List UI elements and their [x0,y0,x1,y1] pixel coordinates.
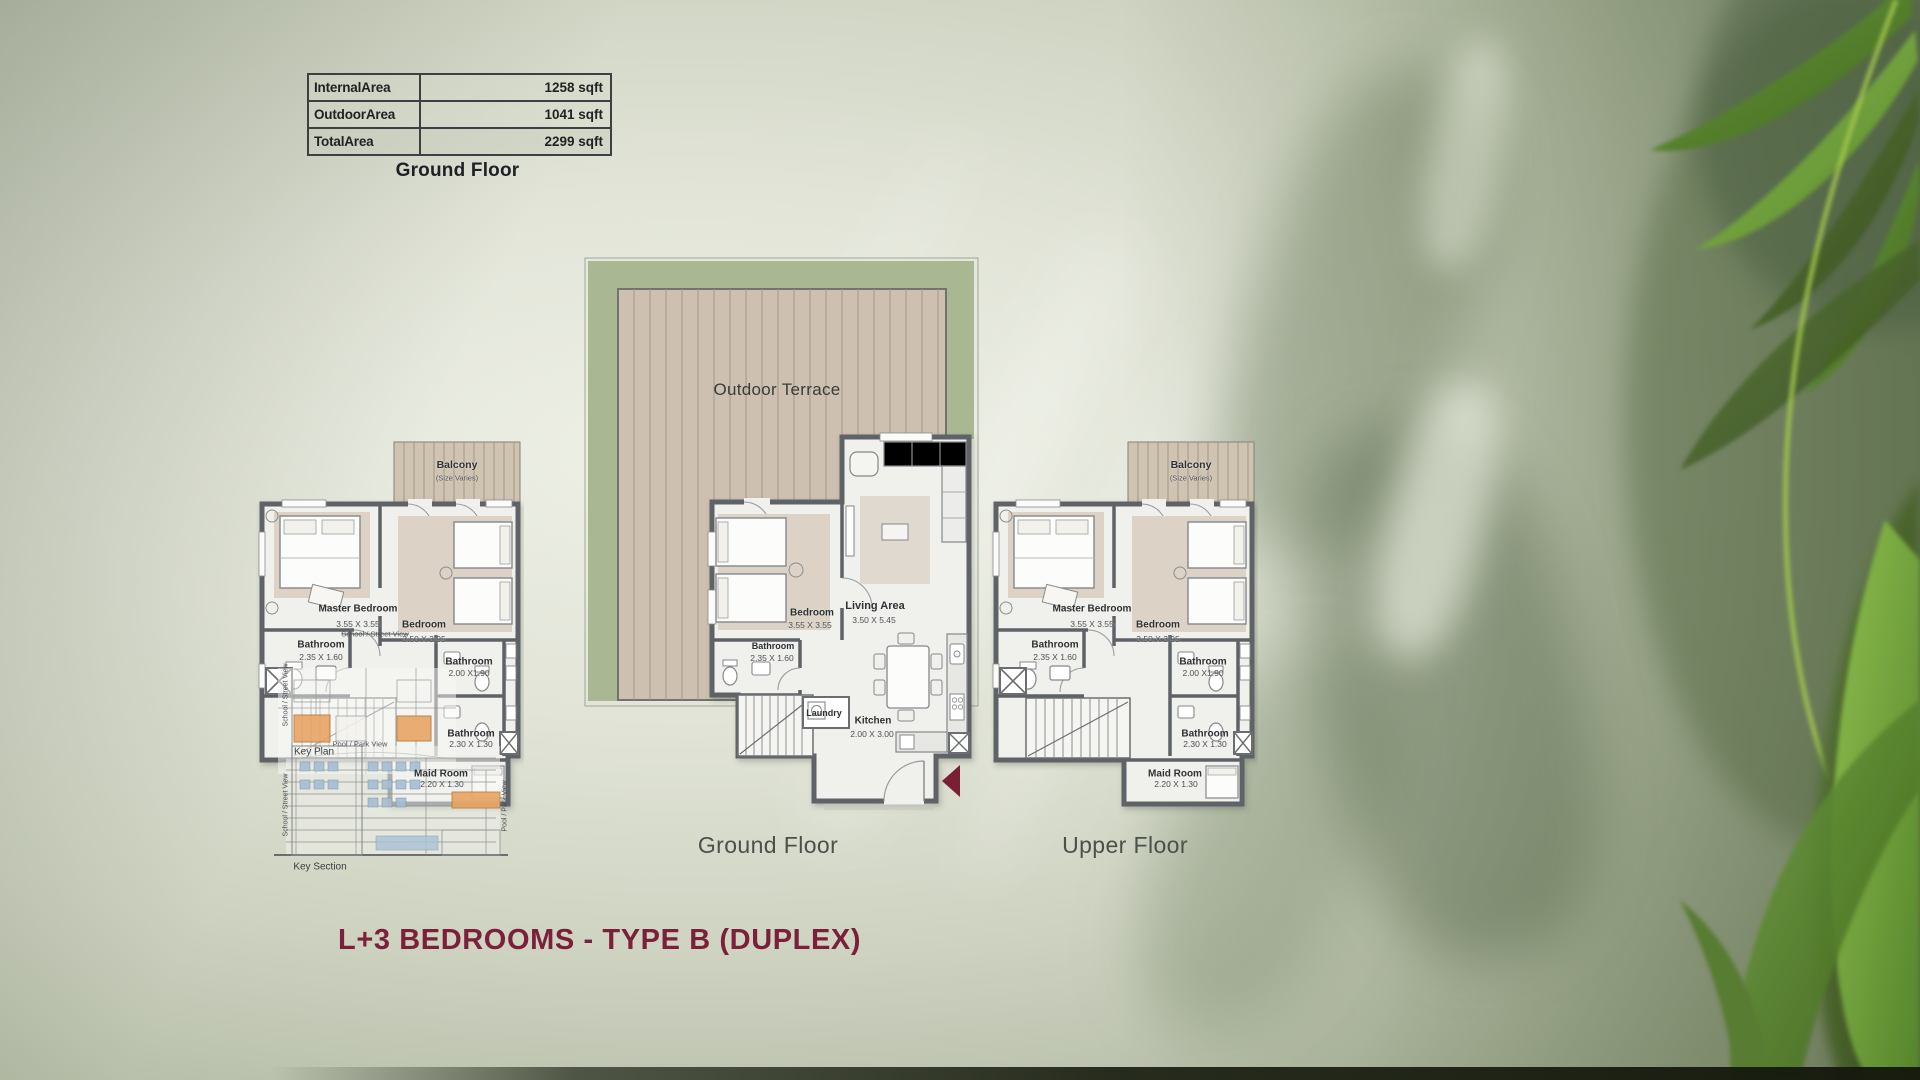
table-row: OutdoorArea 1041 sqft [309,102,610,129]
room-dims-bathroom: 2.35 X 1.60 [750,653,793,663]
room-label-bathroom: Bathroom [297,640,344,651]
room-label-master-bedroom: Master Bedroom [1053,604,1132,615]
table-caption: Ground Floor [307,160,608,182]
room-label-living-area: Living Area [845,600,905,612]
room-dims-master-bedroom: 3.55 X 3.55 [1070,619,1113,629]
terrace-label: Outdoor Terrace [713,380,840,400]
area-row-value: 2299 sqft [421,129,610,154]
area-row-value: 1258 sqft [421,75,610,100]
floor-plan-drawing-right [990,440,1258,820]
room-dims-bedroom: 3.50 X 3.95 [402,634,445,644]
room-label-bathroom: Bathroom [1179,657,1226,668]
room-label-bedroom: Bedroom [1136,620,1180,631]
caption-ground-floor: Ground Floor [698,832,838,859]
room-label-bathroom: Bathroom [1031,640,1078,651]
view-note-school-street-vertical: School / Street View [283,774,290,837]
room-dims-maid-room: 2.20 X 1.30 [1154,779,1197,789]
room-label-bathroom: Bathroom [445,657,492,668]
table-row: TotalArea 2299 sqft [309,129,610,154]
palm-leaves-illustration [1300,0,1920,1080]
room-dims-bathroom: 2.30 X 1.30 [1183,739,1226,749]
view-note-school-street-vertical: School / Street View [283,664,290,727]
room-note-balcony: (Size Varies) [1170,474,1212,483]
room-label-bathroom: Bathroom [447,729,494,740]
key-plan-label: Key Plan [294,747,334,758]
brochure-page: InternalArea 1258 sqft OutdoorArea 1041 … [0,0,1920,1080]
area-row-label: OutdoorArea [309,102,421,127]
area-row-label: InternalArea [309,75,421,100]
table-row: InternalArea 1258 sqft [309,75,610,102]
room-label-maid-room: Maid Room [414,769,468,780]
room-dims-bathroom: 2.30 X 1.30 [449,739,492,749]
room-dims-kitchen: 2.00 X 3.00 [850,729,893,739]
room-dims-bedroom: 3.50 X 3.95 [1136,634,1179,644]
room-dims-bathroom: 2.00 X1.90 [1182,668,1223,678]
room-label-kitchen: Kitchen [855,716,892,727]
room-label-balcony: Balcony [437,459,478,471]
room-label-bathroom: Bathroom [1181,729,1228,740]
plan-upper-floor: Balcony (Size Varies) Master Bedroom 3.5… [990,440,1258,820]
room-label-balcony: Balcony [1171,459,1212,471]
area-table: InternalArea 1258 sqft OutdoorArea 1041 … [307,73,612,156]
bottom-edge-shadow [0,1067,1920,1080]
view-note-pool-park-vertical: Pool / Park View [502,780,509,831]
room-dims-maid-room: 2.20 X 1.30 [420,779,463,789]
area-row-value: 1041 sqft [421,102,610,127]
room-dims-bedroom: 3.55 X 3.55 [788,620,831,630]
room-dims-bathroom: 2.35 X 1.60 [1033,652,1076,662]
plan-ground-floor: Outdoor Terrace Bedroom 3.55 X 3.55 Livi… [584,256,984,816]
room-label-master-bedroom: Master Bedroom [319,604,398,615]
view-note-school-street: School / Street View [341,630,408,639]
room-label-maid-room: Maid Room [1148,769,1202,780]
room-label-laundry: Laundry [806,708,842,718]
room-dims-master-bedroom: 3.55 X 3.55 [336,619,379,629]
plan-upper-floor-key: Balcony (Size Varies) Master Bedroom 3.5… [256,440,524,882]
room-note-balcony: (Size Varies) [436,474,478,483]
area-row-label: TotalArea [309,129,421,154]
view-note-pool-park: Pool / Park View [333,740,388,749]
page-title: L+3 BEDROOMS - TYPE B (DUPLEX) [338,924,861,957]
caption-upper-floor: Upper Floor [1062,832,1188,859]
room-label-bedroom: Bedroom [790,608,834,619]
room-dims-bathroom: 2.00 X1.90 [448,668,489,678]
room-label-bathroom: Bathroom [752,641,795,651]
floor-plan-drawing-ground [584,256,984,816]
room-dims-living-area: 3.50 X 5.45 [852,615,895,625]
room-dims-bathroom: 2.35 X 1.60 [299,652,342,662]
key-section-label: Key Section [293,862,346,873]
